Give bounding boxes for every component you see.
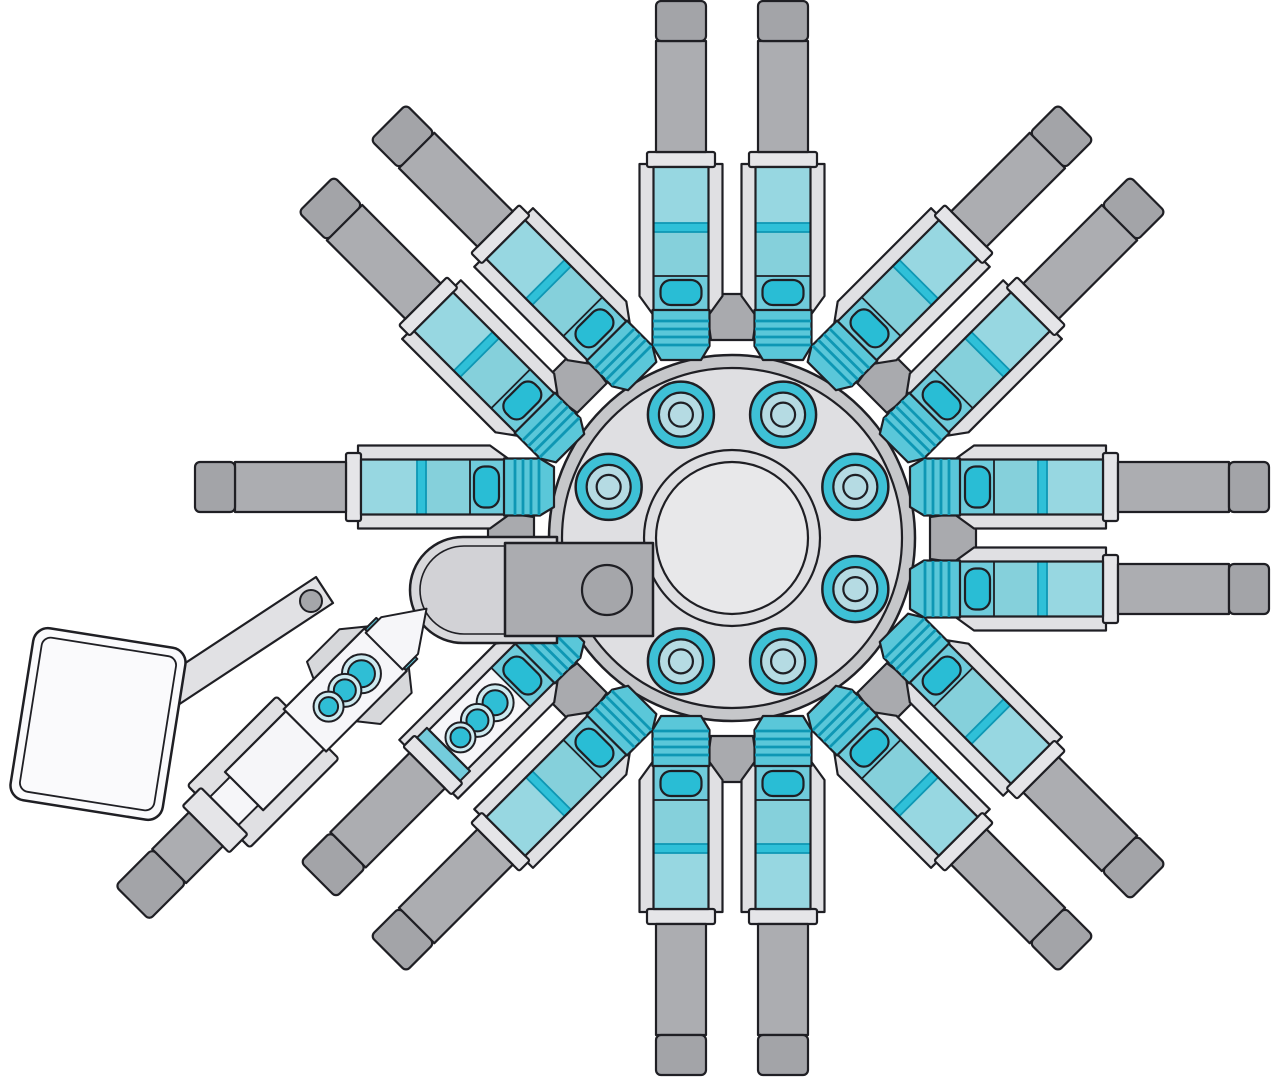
arm-body-seg3 xyxy=(361,460,417,515)
arm-end-cap xyxy=(195,462,235,512)
arm-collar xyxy=(346,453,361,521)
lever-pivot-hole xyxy=(300,590,322,612)
arm-body-seg2 xyxy=(426,460,470,515)
arm-body-seg2 xyxy=(994,562,1038,617)
arm-shaft xyxy=(656,41,706,152)
oil-tank xyxy=(8,626,187,822)
bolt-boss-center xyxy=(843,577,867,601)
arm-pill xyxy=(965,467,990,508)
arm-end-cap xyxy=(656,1035,706,1075)
arm-divider-band xyxy=(654,223,709,232)
bolt-boss xyxy=(822,454,888,520)
bolt-boss-center xyxy=(843,475,867,499)
arm-end-cap xyxy=(758,1,808,41)
bolt-boss-center xyxy=(597,475,621,499)
arm-nose xyxy=(504,459,554,516)
arm-divider-band xyxy=(756,223,811,232)
arm-pill xyxy=(661,771,702,796)
bolt-boss-center xyxy=(669,403,693,427)
arm-pill xyxy=(474,467,499,508)
arm-body-seg2 xyxy=(756,800,811,844)
arm-divider-band xyxy=(1038,460,1047,515)
bolt-boss xyxy=(822,556,888,622)
arm-shaft xyxy=(758,41,808,152)
reaction-linkage xyxy=(410,537,653,643)
arm-nose xyxy=(910,459,960,516)
arm-body-seg3 xyxy=(756,853,811,909)
bolt-boss xyxy=(750,628,816,694)
arm-shaft xyxy=(758,924,808,1035)
arm-nose xyxy=(653,310,710,360)
arm-body-seg3 xyxy=(654,167,709,223)
arm-end-cap xyxy=(656,1,706,41)
center-bore xyxy=(656,462,808,614)
arm-pill xyxy=(763,771,804,796)
arm-shaft xyxy=(1118,564,1229,614)
arm-divider-band xyxy=(756,844,811,853)
arm-shaft xyxy=(1118,462,1229,512)
flange-hub xyxy=(549,355,915,721)
arm-collar xyxy=(647,909,715,924)
arm-body-seg3 xyxy=(654,853,709,909)
arm-end-cap xyxy=(1229,462,1269,512)
bolt-boss xyxy=(648,628,714,694)
arm-end-cap xyxy=(758,1035,808,1075)
arm-shaft xyxy=(235,462,346,512)
arm-divider-band xyxy=(1038,562,1047,617)
arm-end-cap xyxy=(1229,564,1269,614)
diagram-stage xyxy=(0,0,1271,1080)
arm-nose xyxy=(755,716,812,766)
bolt-boss xyxy=(576,454,642,520)
arm-body-seg2 xyxy=(994,460,1038,515)
arm-nose xyxy=(653,716,710,766)
machine-diagram xyxy=(0,0,1271,1080)
bolt-boss-center xyxy=(771,403,795,427)
arm-collar xyxy=(1103,555,1118,623)
bolt-boss xyxy=(648,382,714,448)
bolt-boss xyxy=(750,382,816,448)
arm-nose xyxy=(755,310,812,360)
arm-nose xyxy=(910,561,960,618)
arm-body-seg2 xyxy=(654,232,709,276)
arm-pill xyxy=(965,569,990,610)
arm-body-seg2 xyxy=(756,232,811,276)
arm-divider-band xyxy=(654,844,709,853)
bolt-boss-center xyxy=(771,649,795,673)
arm-body-seg2 xyxy=(654,800,709,844)
arm-body-seg3 xyxy=(756,167,811,223)
bolt-boss-center xyxy=(669,649,693,673)
arm-body-seg3 xyxy=(1047,562,1103,617)
arm-body-seg3 xyxy=(1047,460,1103,515)
arm-pill xyxy=(661,280,702,305)
arm-pill xyxy=(763,280,804,305)
arm-collar xyxy=(1103,453,1118,521)
arm-shaft xyxy=(656,924,706,1035)
arm-divider-band xyxy=(417,460,426,515)
arm-collar xyxy=(749,909,817,924)
arm-collar xyxy=(749,152,817,167)
arm-collar xyxy=(647,152,715,167)
linkage-pin-hole xyxy=(582,565,632,615)
